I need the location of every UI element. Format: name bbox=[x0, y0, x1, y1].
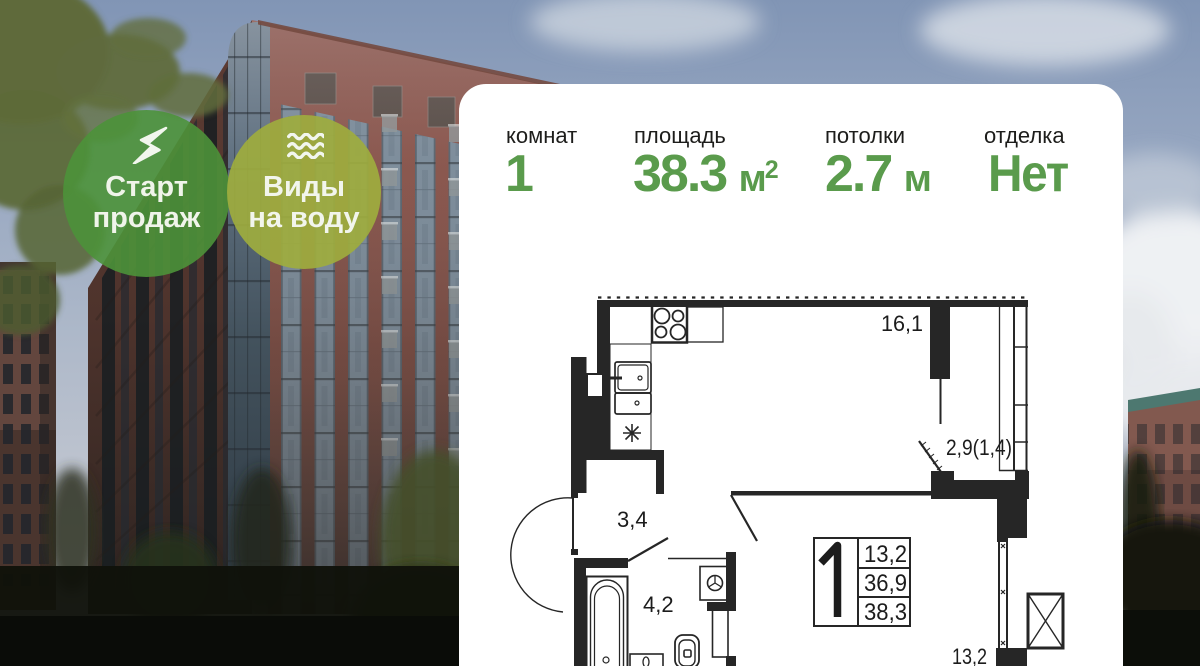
svg-text:16,1: 16,1 bbox=[881, 311, 923, 336]
svg-text:38,3: 38,3 bbox=[864, 599, 907, 626]
svg-text:2,9(1,4): 2,9(1,4) bbox=[946, 435, 1012, 460]
svg-text:3,4: 3,4 bbox=[617, 507, 648, 532]
svg-text:4,2: 4,2 bbox=[643, 592, 674, 617]
svg-text:13,2: 13,2 bbox=[864, 541, 907, 568]
svg-text:13,2: 13,2 bbox=[952, 644, 987, 666]
svg-text:36,9: 36,9 bbox=[864, 570, 907, 597]
